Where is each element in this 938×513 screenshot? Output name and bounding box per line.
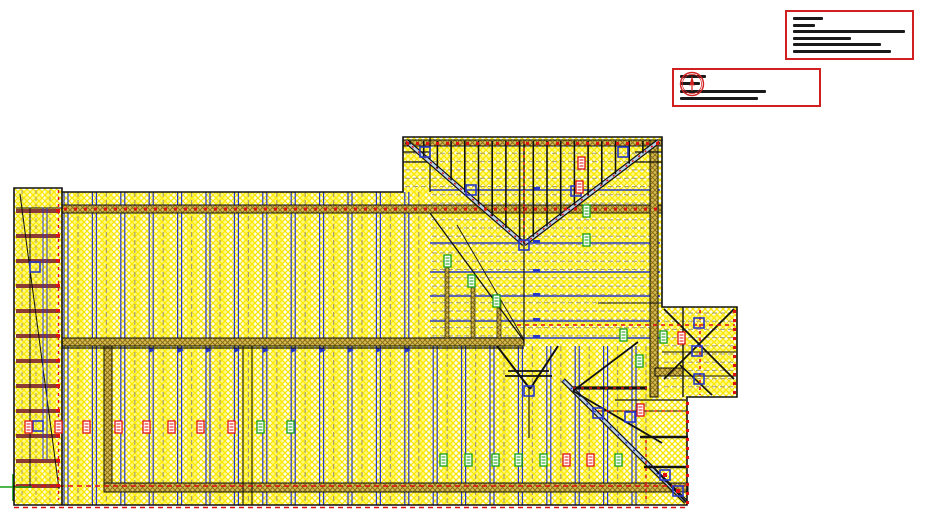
red-dot xyxy=(204,208,207,211)
red-dot xyxy=(686,411,689,414)
joist-bay-band xyxy=(432,255,658,259)
stair-beam xyxy=(16,334,60,338)
stair-beam xyxy=(16,359,60,363)
joist-bay-band xyxy=(432,197,658,201)
red-dot xyxy=(144,208,147,211)
red-dot xyxy=(224,208,227,211)
red-dot xyxy=(686,465,689,468)
red-dot xyxy=(56,434,60,437)
red-dot xyxy=(686,474,689,477)
joist-bay-band xyxy=(405,164,431,168)
span-tick xyxy=(533,293,540,296)
red-dot xyxy=(646,142,649,145)
stair-beam xyxy=(16,309,60,313)
red-dot xyxy=(394,208,397,211)
joist-bay-band xyxy=(405,172,431,176)
connector-dot xyxy=(676,489,680,493)
red-dot xyxy=(534,208,537,211)
joist-bay-band xyxy=(432,296,658,300)
red-dot xyxy=(574,208,577,211)
joist-bay-band xyxy=(664,331,734,335)
red-dot xyxy=(733,346,736,349)
red-dot xyxy=(606,142,609,145)
stair-beam xyxy=(16,434,60,438)
stair-beam xyxy=(16,384,60,388)
red-dot xyxy=(514,208,517,211)
joist-bay-band xyxy=(432,288,658,292)
stair-beam xyxy=(16,459,60,463)
red-dot xyxy=(154,208,157,211)
red-dot xyxy=(733,382,736,385)
joist-bay-band xyxy=(432,247,658,251)
red-dot xyxy=(354,208,357,211)
red-dot xyxy=(476,142,479,145)
titleblock-text-line xyxy=(793,24,815,27)
joist-bay-band xyxy=(432,213,658,217)
red-dot xyxy=(56,309,60,312)
red-dot xyxy=(244,208,247,211)
red-dot xyxy=(464,208,467,211)
titleblock-text-line xyxy=(793,17,823,20)
red-dot xyxy=(314,208,317,211)
joist-bay-band xyxy=(432,313,658,317)
titleblock-text-line xyxy=(793,50,891,53)
red-dot xyxy=(544,208,547,211)
red-dot xyxy=(604,208,607,211)
red-dot xyxy=(64,208,67,211)
red-dot xyxy=(404,208,407,211)
red-dot xyxy=(686,501,689,504)
red-dot xyxy=(384,208,387,211)
red-dot xyxy=(184,208,187,211)
titleblock-text-line xyxy=(793,30,905,33)
red-dot xyxy=(304,208,307,211)
joist-bay-band xyxy=(405,180,431,184)
red-dot xyxy=(686,492,689,495)
red-dot xyxy=(424,208,427,211)
red-dot xyxy=(624,208,627,211)
red-dot xyxy=(56,459,60,462)
red-dot xyxy=(254,208,257,211)
red-dot xyxy=(56,234,60,237)
red-dot xyxy=(566,142,569,145)
red-dot xyxy=(656,142,659,145)
framing-plan-page xyxy=(0,0,938,513)
red-dot xyxy=(414,208,417,211)
red-dot xyxy=(56,259,60,262)
red-dot xyxy=(364,208,367,211)
red-dot xyxy=(444,208,447,211)
red-dot xyxy=(564,208,567,211)
red-dot xyxy=(74,208,77,211)
red-dot xyxy=(576,142,579,145)
red-dot xyxy=(536,142,539,145)
red-dot xyxy=(56,484,60,487)
joist-bay-band xyxy=(499,346,510,505)
red-dot xyxy=(56,284,60,287)
span-tick xyxy=(533,318,540,321)
red-dot xyxy=(686,438,689,441)
joist-bay-band xyxy=(664,323,734,327)
red-dot xyxy=(104,208,107,211)
red-dot xyxy=(644,208,647,211)
titleblock-company-info xyxy=(672,68,821,107)
company-logo-icon xyxy=(678,70,706,98)
joist-bay-band xyxy=(442,346,453,505)
red-dot xyxy=(214,208,217,211)
red-dot xyxy=(686,429,689,432)
red-dot xyxy=(733,355,736,358)
red-dot xyxy=(56,409,60,412)
red-dot xyxy=(164,208,167,211)
red-dot xyxy=(124,208,127,211)
red-dot xyxy=(134,208,137,211)
red-dot xyxy=(733,337,736,340)
red-dot xyxy=(426,142,429,145)
stair-beam xyxy=(16,409,60,413)
red-dot xyxy=(596,142,599,145)
joist-bay-band xyxy=(556,346,567,505)
red-dot xyxy=(496,142,499,145)
joist-bay-band xyxy=(664,348,734,352)
red-dot xyxy=(654,208,657,211)
red-dot xyxy=(686,483,689,486)
red-dot xyxy=(586,142,589,145)
stair-beam xyxy=(16,284,60,288)
titleblock-text-line xyxy=(793,43,881,46)
red-dot xyxy=(84,208,87,211)
red-dot xyxy=(516,142,519,145)
titleblock-project-info xyxy=(785,10,914,60)
joist-bay-band xyxy=(613,346,624,505)
red-dot xyxy=(733,310,736,313)
red-dot xyxy=(504,208,507,211)
red-dot xyxy=(94,208,97,211)
red-dot xyxy=(234,208,237,211)
red-dot xyxy=(484,208,487,211)
red-dot xyxy=(554,208,557,211)
red-dot xyxy=(733,319,736,322)
red-dot xyxy=(56,384,60,387)
red-dot xyxy=(194,208,197,211)
red-dot xyxy=(486,142,489,145)
red-dot xyxy=(274,208,277,211)
stair-beam xyxy=(16,234,60,238)
connector-dot xyxy=(663,473,667,477)
red-dot xyxy=(456,142,459,145)
red-dot xyxy=(466,142,469,145)
red-dot xyxy=(56,334,60,337)
joist-bay-band xyxy=(432,305,658,309)
red-dot xyxy=(546,142,549,145)
red-dot xyxy=(56,359,60,362)
red-dot xyxy=(506,142,509,145)
red-dot xyxy=(264,208,267,211)
red-dot xyxy=(556,142,559,145)
red-dot xyxy=(526,142,529,145)
red-dot xyxy=(686,402,689,405)
red-dot xyxy=(733,328,736,331)
red-dot xyxy=(114,208,117,211)
red-dot xyxy=(344,208,347,211)
red-dot xyxy=(436,142,439,145)
red-dot xyxy=(174,208,177,211)
joist-bay-band xyxy=(432,180,658,184)
red-dot xyxy=(524,208,527,211)
joist-bay-band xyxy=(584,346,595,505)
joist-bay-band xyxy=(432,172,658,176)
joist-bay-band xyxy=(432,280,658,284)
red-dot xyxy=(733,364,736,367)
red-dot xyxy=(446,142,449,145)
red-dot xyxy=(594,208,597,211)
red-dot xyxy=(733,373,736,376)
red-dot xyxy=(634,208,637,211)
red-dot xyxy=(626,142,629,145)
red-dot xyxy=(374,208,377,211)
red-dot xyxy=(334,208,337,211)
span-tick xyxy=(533,269,540,272)
red-dot xyxy=(294,208,297,211)
red-dot xyxy=(494,208,497,211)
red-dot xyxy=(733,391,736,394)
joist-bay-band xyxy=(432,263,658,267)
red-dot xyxy=(454,208,457,211)
titleblock-text-line xyxy=(793,37,851,40)
red-dot xyxy=(636,142,639,145)
joist-bay-band xyxy=(471,346,482,505)
red-dot xyxy=(686,420,689,423)
red-dot xyxy=(284,208,287,211)
red-dot xyxy=(324,208,327,211)
red-dot xyxy=(416,142,419,145)
red-dot xyxy=(56,209,60,212)
red-dot xyxy=(474,208,477,211)
red-dot xyxy=(686,456,689,459)
red-dot xyxy=(686,447,689,450)
red-dot xyxy=(406,142,409,145)
red-dot xyxy=(614,208,617,211)
span-tick xyxy=(533,335,540,338)
red-dot xyxy=(434,208,437,211)
joist-bay-band xyxy=(664,389,734,393)
span-tick xyxy=(533,240,540,243)
red-dot xyxy=(616,142,619,145)
